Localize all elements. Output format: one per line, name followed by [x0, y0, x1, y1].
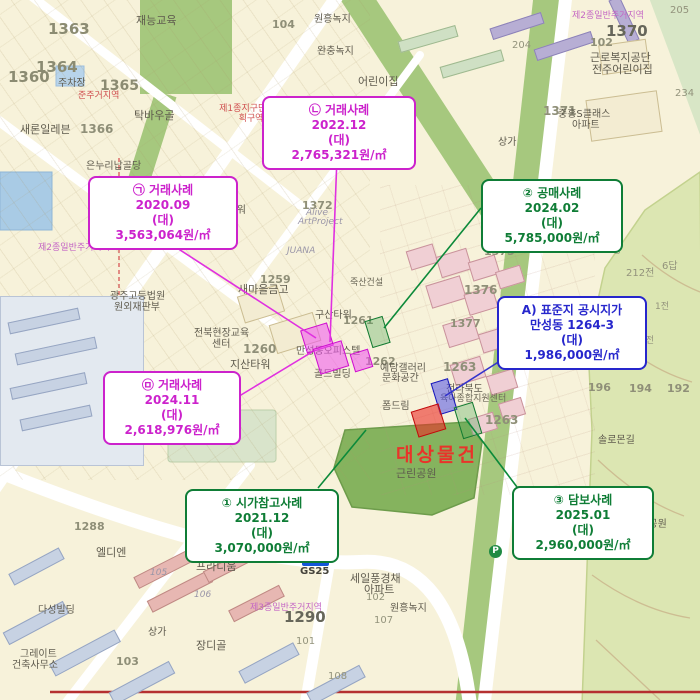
map-label: 원흥녹지	[314, 10, 351, 25]
map-label: 엘디엔	[96, 544, 126, 560]
callout-sale-2022-12[interactable]: ㉡ 거래사례 2022.12 (대) 2,765,321원/㎡	[262, 96, 416, 170]
zoning-label: 제3종일반주거지역	[250, 600, 322, 613]
map-label: 새마을금고	[238, 281, 289, 297]
map-label: 완충녹지	[317, 42, 354, 57]
parcel-sale-highlight[interactable]	[350, 349, 374, 373]
map-label: 1263	[443, 360, 476, 374]
map-label: 1377	[450, 317, 481, 330]
map-label: 107	[374, 615, 393, 626]
map-label: 전주어린이집	[592, 61, 653, 77]
callout-date: 2022.12	[271, 118, 407, 133]
map-label: 1376	[464, 283, 497, 297]
callout-sale-2020-09[interactable]: ㉠ 거래사례 2020.09 (대) 3,563,064원/㎡	[88, 176, 238, 250]
map-label: 주차장	[58, 74, 86, 89]
map-label: 솔로몬길	[598, 431, 635, 446]
map-label: ArtProject	[298, 217, 343, 227]
callout-land-type: (대)	[521, 523, 645, 538]
callout-price: 1,986,000원/㎡	[506, 348, 638, 363]
building	[406, 243, 439, 270]
callout-land-type: (대)	[506, 333, 638, 348]
callout-title: ㉠ 거래사례	[97, 183, 229, 198]
map-label: 192	[667, 382, 690, 395]
callout-title: ㉤ 거래사례	[112, 378, 232, 393]
callout-date: 2025.01	[521, 508, 645, 523]
parcel-auction-highlight[interactable]	[364, 316, 390, 348]
map-label: 101	[296, 636, 315, 647]
map-label: 은누리납골당	[86, 157, 141, 172]
map-label: 어린이집	[358, 73, 398, 89]
map-label: 죽산건설	[350, 275, 383, 288]
callout-standard-lot-price[interactable]: A) 표준지 공시지가 만성동 1264-3 (대) 1,986,000원/㎡	[497, 296, 647, 370]
gs25-store-label: GS25	[300, 566, 329, 577]
map-label: 104	[272, 18, 295, 31]
map-label: 103	[116, 655, 139, 668]
map-label: 장디골	[196, 637, 226, 653]
map-label: 1370	[606, 22, 648, 40]
callout-date: 2020.09	[97, 198, 229, 213]
callout-collateral-case[interactable]: ③ 담보사례 2025.01 (대) 2,960,000원/㎡	[512, 486, 654, 560]
map-label: 1전	[655, 299, 669, 312]
map-label: 1360	[8, 68, 50, 86]
map-label: 아파트	[364, 581, 394, 597]
map-label: 105	[150, 568, 167, 578]
map-label: 아파트	[572, 116, 600, 131]
callout-market-reference[interactable]: ① 시가참고사례 2021.12 (대) 3,070,000원/㎡	[185, 489, 339, 563]
map-label: 212전	[626, 264, 654, 279]
map-label: 205	[670, 5, 689, 16]
callout-price: 2,765,321원/㎡	[271, 148, 407, 163]
map-label: 새론일레븐	[20, 121, 71, 137]
callout-land-type: (대)	[490, 216, 614, 231]
callout-land-type: (대)	[194, 526, 330, 541]
map-label: 1366	[80, 122, 113, 136]
building	[440, 49, 505, 78]
map-label: 건축사무소	[12, 656, 58, 671]
map-label: 원외재판부	[114, 298, 160, 313]
map-label: 6답	[662, 257, 678, 272]
parking-icon: P	[489, 545, 502, 558]
map-label: 196	[588, 381, 611, 394]
map-label: 1260	[243, 342, 276, 356]
callout-price: 2,618,976원/㎡	[112, 423, 232, 438]
map-label: 1263	[485, 413, 518, 427]
building	[495, 265, 525, 290]
callout-date: 2021.12	[194, 511, 330, 526]
map-label: 재능교육	[136, 12, 176, 28]
callout-title: ③ 담보사례	[521, 493, 645, 508]
building	[468, 254, 501, 281]
callout-title: ① 시가참고사례	[194, 496, 330, 511]
callout-date: 2024.11	[112, 393, 232, 408]
map-label: 근린공원	[396, 465, 436, 481]
map-label: 108	[328, 671, 347, 682]
callout-land-type: (대)	[112, 408, 232, 423]
map-label: 1363	[48, 20, 90, 38]
map-label: 탁바우골	[134, 107, 174, 123]
map-label: 234	[675, 88, 694, 99]
callout-price: 5,785,000원/㎡	[490, 231, 614, 246]
callout-title: ㉡ 거래사례	[271, 103, 407, 118]
callout-lot: 만성동 1264-3	[506, 318, 638, 333]
pond	[0, 172, 52, 230]
building	[398, 25, 459, 53]
map-label: 상가	[498, 133, 516, 148]
building	[238, 642, 299, 683]
building	[534, 31, 595, 61]
callout-date: 2024.02	[490, 201, 614, 216]
map-label: 원흥녹지	[390, 599, 427, 614]
map-label: 문화공간	[382, 369, 419, 384]
building	[489, 12, 544, 40]
map-label: 상가	[148, 623, 166, 638]
callout-sale-2024-11[interactable]: ㉤ 거래사례 2024.11 (대) 2,618,976원/㎡	[103, 371, 241, 445]
callout-title: A) 표준지 공시지가	[506, 303, 638, 318]
map-label: JUANA	[287, 246, 315, 256]
building	[8, 547, 64, 585]
map-label: 106	[194, 590, 211, 600]
zoning-label: 제2종일반주거지역	[572, 8, 644, 21]
building	[49, 629, 121, 676]
callout-price: 2,960,000원/㎡	[521, 538, 645, 553]
callout-price: 3,563,064원/㎡	[97, 228, 229, 243]
map-label: 지산타워	[230, 356, 270, 372]
map-label: 구산타워	[315, 306, 352, 321]
building	[425, 275, 466, 308]
map-label: 센터	[212, 335, 230, 350]
parcel-collateral-highlight[interactable]	[454, 402, 483, 439]
map-label: 1288	[74, 520, 105, 533]
map-label: 폼드림	[382, 397, 410, 412]
callout-land-type: (대)	[97, 213, 229, 228]
callout-price: 3,070,000원/㎡	[194, 541, 330, 556]
subject-property-label: 대상물건	[396, 440, 478, 467]
callout-title: ② 공매사례	[490, 186, 614, 201]
callout-land-type: (대)	[271, 133, 407, 148]
zoning-label: 준주거지역	[78, 88, 119, 101]
map-canvas[interactable]: 1363 1364 1360 1365 1366 104 102 205 204…	[0, 0, 700, 700]
map-label: 194	[629, 382, 652, 395]
map-label: 204	[512, 40, 531, 51]
callout-public-auction[interactable]: ② 공매사례 2024.02 (대) 5,785,000원/㎡	[481, 179, 623, 253]
map-label: 다성빌딩	[38, 601, 75, 616]
